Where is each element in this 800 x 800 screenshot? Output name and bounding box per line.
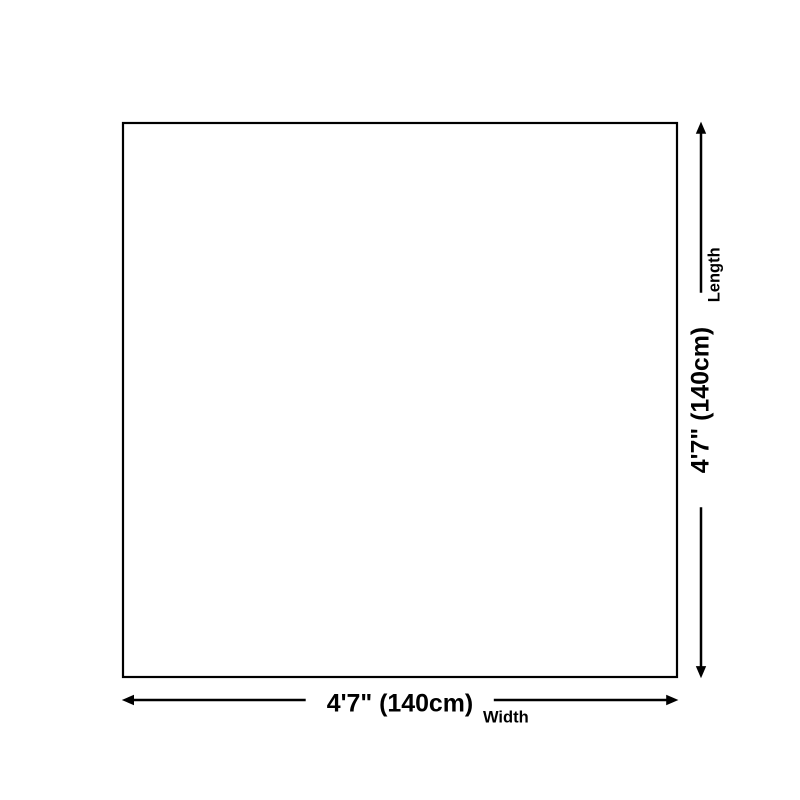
svg-text:Width: Width — [483, 709, 529, 727]
svg-text:4'7" (140cm): 4'7" (140cm) — [327, 689, 473, 717]
svg-text:4'7" (140cm): 4'7" (140cm) — [687, 327, 715, 473]
svg-text:Length: Length — [705, 247, 723, 302]
